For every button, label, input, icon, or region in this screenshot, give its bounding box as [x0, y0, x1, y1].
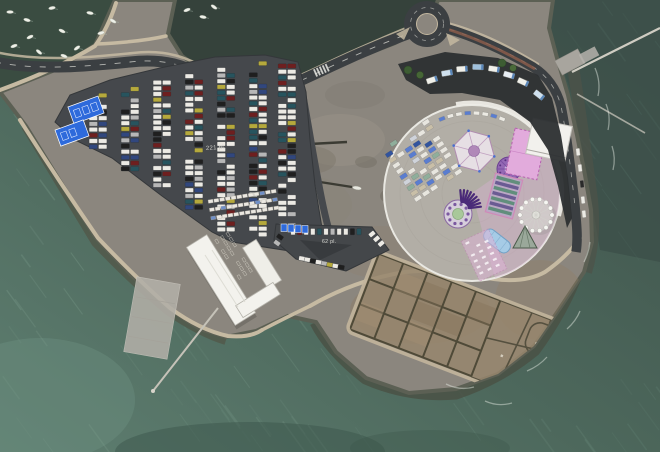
ray	[469, 207, 481, 208]
parked-car	[131, 98, 139, 102]
parked-car	[259, 130, 267, 134]
parked-car	[163, 80, 171, 84]
parked-car	[259, 90, 267, 94]
parked-car	[121, 121, 129, 125]
parked-car	[249, 95, 257, 99]
parked-car	[288, 149, 296, 153]
parked-car	[163, 86, 171, 90]
parked-car	[278, 206, 286, 210]
parked-car	[185, 120, 193, 124]
parked-car	[195, 97, 203, 101]
parked-car	[227, 73, 235, 77]
parked-car	[153, 137, 161, 141]
parked-car	[121, 150, 129, 154]
perimeter-stall	[482, 112, 489, 117]
parked-car	[195, 120, 203, 124]
parked-car	[278, 70, 286, 74]
parked-car	[249, 170, 257, 174]
parked-car	[288, 212, 296, 216]
parked-car	[278, 115, 286, 119]
parked-car	[131, 155, 139, 159]
parked-car	[249, 101, 257, 105]
parked-car	[185, 131, 193, 135]
storage-stall	[208, 199, 213, 203]
parked-car	[217, 153, 225, 157]
storage-stall	[251, 209, 256, 213]
parked-car	[249, 90, 257, 94]
parked-car	[131, 138, 139, 142]
parked-car	[288, 172, 296, 176]
parked-car	[278, 172, 286, 176]
parked-car	[278, 81, 286, 85]
ferris-cabin	[519, 206, 523, 210]
parked-car	[195, 188, 203, 192]
parked-car	[99, 116, 107, 120]
perimeter-stall	[473, 111, 479, 115]
parked-car	[288, 178, 296, 182]
parked-car	[195, 160, 203, 164]
parked-car	[195, 205, 203, 209]
parked-car	[278, 155, 286, 159]
parked-car	[227, 142, 235, 146]
parked-car	[121, 167, 129, 171]
ferris-cabin	[518, 213, 522, 217]
parked-car	[278, 189, 286, 193]
parked-car	[195, 114, 203, 118]
parked-car	[288, 144, 296, 148]
parked-car	[278, 121, 286, 125]
parked-car	[163, 126, 171, 130]
parked-car	[249, 215, 257, 219]
parked-car	[163, 172, 171, 176]
parked-car	[185, 194, 193, 198]
parked-car	[153, 126, 161, 130]
parked-car	[153, 103, 161, 107]
parked-car	[217, 73, 225, 77]
parked-car	[131, 104, 139, 108]
perimeter-stall	[456, 112, 463, 117]
parked-car	[185, 125, 193, 129]
parked-car	[259, 227, 267, 231]
storage-stall	[209, 208, 214, 212]
parked-car	[217, 125, 225, 129]
parked-car	[288, 127, 296, 131]
parked-car	[195, 165, 203, 169]
parked-car	[163, 166, 171, 170]
parked-car	[259, 124, 267, 128]
storage-stall	[261, 199, 266, 203]
ferris-cabin	[544, 200, 548, 204]
site-plan-svg: 221 pl. 62 pl.	[0, 0, 660, 452]
parked-car	[185, 97, 193, 101]
parked-car	[227, 90, 235, 94]
parked-car	[185, 171, 193, 175]
parked-car	[288, 132, 296, 136]
parked-car	[288, 166, 296, 170]
storage-stall	[265, 190, 270, 194]
parked-car	[121, 161, 129, 165]
parked-car	[259, 84, 267, 88]
parked-car	[131, 121, 139, 125]
parked-car	[249, 78, 257, 82]
parked-car	[227, 108, 235, 112]
storage-stall	[244, 202, 249, 206]
parked-car	[278, 104, 286, 108]
ferris-cabin	[544, 225, 548, 229]
storage-stall	[262, 208, 267, 212]
storage-stall	[239, 211, 244, 215]
parked-car	[337, 229, 341, 235]
ray	[460, 190, 461, 202]
storage-stall	[228, 213, 233, 217]
parked-car	[185, 108, 193, 112]
storage-stall	[215, 207, 220, 211]
ferris-cabin	[550, 213, 554, 217]
storage-stall	[248, 193, 253, 197]
parked-car	[576, 148, 581, 156]
parked-car	[227, 85, 235, 89]
parked-car	[227, 170, 235, 174]
parked-car	[121, 138, 129, 142]
parked-car	[249, 130, 257, 134]
parked-car	[350, 229, 354, 235]
ferris-cabin	[548, 206, 552, 210]
ferris-cabin	[530, 228, 534, 232]
parked-car	[163, 115, 171, 119]
parked-car	[578, 164, 583, 172]
perimeter-stall	[465, 111, 471, 115]
storage-stall	[222, 214, 227, 218]
parked-car	[249, 181, 257, 185]
parked-car	[217, 85, 225, 89]
parked-car	[249, 73, 257, 77]
parked-car	[249, 135, 257, 139]
parked-car	[259, 61, 267, 65]
parked-car	[185, 137, 193, 141]
parked-car	[288, 87, 296, 91]
parked-car	[344, 229, 348, 235]
parked-car	[195, 85, 203, 89]
parked-car	[288, 70, 296, 74]
parked-car	[259, 170, 267, 174]
parked-car	[217, 113, 225, 117]
parked-car	[153, 98, 161, 102]
parked-car	[259, 118, 267, 122]
parked-car	[153, 92, 161, 96]
parked-car	[278, 75, 286, 79]
parked-car	[278, 212, 286, 216]
parked-car	[288, 161, 296, 165]
storage-stall	[231, 196, 236, 200]
parked-car	[288, 121, 296, 125]
storage-stall	[214, 198, 219, 202]
parked-car	[338, 265, 345, 270]
parked-car	[288, 92, 296, 96]
parked-car	[227, 227, 235, 231]
parked-car	[121, 155, 129, 159]
parked-car	[288, 155, 296, 159]
storage-stall	[272, 198, 277, 202]
parked-car	[288, 195, 296, 199]
storage-stall	[216, 215, 221, 219]
parked-car	[131, 150, 139, 154]
parked-car	[278, 138, 286, 142]
parked-car	[259, 232, 267, 236]
parked-car	[278, 166, 286, 170]
parked-car	[330, 229, 334, 235]
parked-car	[217, 193, 225, 197]
food-truck	[456, 66, 467, 72]
parked-car	[249, 227, 257, 231]
storage-stall	[268, 207, 273, 211]
boat	[7, 11, 14, 14]
parked-car	[195, 177, 203, 181]
parked-car	[259, 107, 267, 111]
parked-car	[249, 152, 257, 156]
storage-stall	[219, 197, 224, 201]
parked-car	[153, 80, 161, 84]
parked-car	[185, 177, 193, 181]
parked-car	[227, 79, 235, 83]
parked-car	[195, 171, 203, 175]
parked-car	[185, 74, 193, 78]
parked-car	[288, 75, 296, 79]
secondary-parking-capacity-label: 62 pl.	[322, 239, 337, 245]
parked-car	[89, 122, 97, 126]
parked-car	[153, 143, 161, 147]
parked-car	[89, 145, 97, 149]
parked-car	[278, 132, 286, 136]
parked-car	[195, 125, 203, 129]
storage-stall	[226, 205, 231, 209]
parked-car	[217, 96, 225, 100]
food-truck	[472, 64, 483, 70]
parked-car	[249, 113, 257, 117]
parked-car	[227, 187, 235, 191]
parked-car	[153, 109, 161, 113]
parked-car	[249, 141, 257, 145]
parked-car	[278, 201, 286, 205]
parked-car	[99, 122, 107, 126]
parked-car	[259, 95, 267, 99]
parked-car	[153, 149, 161, 153]
parked-car	[217, 182, 225, 186]
storage-stall	[256, 209, 261, 213]
parked-car	[288, 115, 296, 119]
parked-car	[99, 127, 107, 131]
parked-car	[259, 175, 267, 179]
parked-car	[153, 166, 161, 170]
ferris-cabin	[548, 220, 552, 224]
parked-car	[217, 227, 225, 231]
parked-car	[195, 194, 203, 198]
parked-car	[131, 161, 139, 165]
parked-car	[227, 165, 235, 169]
parked-car	[227, 153, 235, 157]
storage-stall	[260, 191, 265, 195]
parked-car	[217, 159, 225, 163]
parked-car	[288, 104, 296, 108]
parked-car	[163, 103, 171, 107]
parked-car	[121, 127, 129, 131]
storage-stall	[255, 200, 260, 204]
ferris-cabin	[537, 197, 541, 201]
parked-car	[121, 110, 129, 114]
storage-stall	[211, 216, 216, 220]
parked-car	[185, 91, 193, 95]
ferris-cabin	[530, 197, 534, 201]
parked-car	[227, 96, 235, 100]
parked-car	[249, 175, 257, 179]
parked-car	[185, 85, 193, 89]
parked-car	[195, 80, 203, 84]
parked-car	[288, 109, 296, 113]
storage-stall	[274, 206, 279, 210]
parked-car	[227, 136, 235, 140]
parked-car	[324, 229, 328, 235]
parked-car	[99, 139, 107, 143]
parked-car	[217, 90, 225, 94]
parked-car	[278, 64, 286, 68]
parked-car	[185, 165, 193, 169]
parked-car	[278, 92, 286, 96]
parked-car	[195, 148, 203, 152]
storage-stall	[245, 210, 250, 214]
parked-car	[185, 188, 193, 192]
ferris-cabin	[519, 220, 523, 224]
parked-car	[249, 84, 257, 88]
parked-car	[288, 98, 296, 102]
parked-car	[185, 182, 193, 186]
parked-car	[185, 80, 193, 84]
parked-car	[153, 172, 161, 176]
parked-car	[217, 187, 225, 191]
parked-car	[580, 180, 585, 188]
parked-car	[259, 221, 267, 225]
parked-car	[259, 204, 267, 208]
parked-car	[163, 149, 171, 153]
parked-car	[357, 229, 361, 235]
storage-stall	[249, 201, 254, 205]
parked-car	[311, 229, 315, 235]
parked-car	[131, 115, 139, 119]
parked-car	[185, 103, 193, 107]
parked-car	[89, 127, 97, 131]
parked-car	[89, 139, 97, 143]
parked-car	[259, 113, 267, 117]
parked-car	[227, 176, 235, 180]
parked-car	[163, 155, 171, 159]
parked-car	[581, 196, 586, 204]
parked-car	[259, 164, 267, 168]
parked-car	[217, 222, 225, 226]
parked-car	[249, 124, 257, 128]
storage-stall	[234, 212, 239, 216]
parked-car	[249, 118, 257, 122]
parked-car	[217, 108, 225, 112]
parked-car	[195, 182, 203, 186]
parked-car	[121, 144, 129, 148]
parked-car	[288, 201, 296, 205]
parked-car	[259, 152, 267, 156]
parked-car	[217, 170, 225, 174]
parked-car	[131, 87, 139, 91]
parked-car	[217, 68, 225, 72]
parked-car	[131, 132, 139, 136]
roundabout-island	[417, 14, 438, 35]
parked-car	[185, 199, 193, 203]
parked-car	[217, 176, 225, 180]
parked-car	[259, 187, 267, 191]
parked-car	[99, 133, 107, 137]
parked-car	[153, 120, 161, 124]
parked-car	[153, 183, 161, 187]
parked-car	[582, 210, 587, 218]
parked-car	[163, 160, 171, 164]
parked-car	[153, 115, 161, 119]
parked-car	[163, 92, 171, 96]
parked-car	[163, 120, 171, 124]
parked-car	[249, 107, 257, 111]
parked-car	[227, 130, 235, 134]
parked-car	[259, 158, 267, 162]
storage-stall	[225, 197, 230, 201]
parked-car	[259, 181, 267, 185]
parked-car	[227, 125, 235, 129]
parked-car	[163, 109, 171, 113]
parked-car	[153, 155, 161, 159]
parked-car	[131, 110, 139, 114]
parked-car	[121, 93, 129, 97]
storage-stall	[254, 192, 259, 196]
parked-car	[195, 108, 203, 112]
parked-car	[153, 177, 161, 181]
parked-car	[227, 182, 235, 186]
parked-car	[195, 199, 203, 203]
storage-stall	[271, 189, 276, 193]
parked-car	[89, 133, 97, 137]
parked-car	[259, 101, 267, 105]
parked-car	[227, 222, 235, 226]
parked-car	[259, 135, 267, 139]
parked-car	[217, 136, 225, 140]
parked-car	[317, 229, 321, 235]
storage-stall	[238, 203, 243, 207]
aerial-site-plan: 221 pl. 62 pl.	[0, 0, 660, 452]
parked-car	[249, 147, 257, 151]
parked-car	[99, 93, 107, 97]
parked-car	[278, 149, 286, 153]
parked-car	[288, 64, 296, 68]
ferris-cabin	[537, 228, 541, 232]
parked-car	[195, 142, 203, 146]
parked-car	[249, 187, 257, 191]
parked-car	[259, 215, 267, 219]
ferris-cabin	[524, 200, 528, 204]
parked-car	[278, 161, 286, 165]
parked-car	[163, 183, 171, 187]
storage-stall	[242, 194, 247, 198]
storage-stall	[237, 195, 242, 199]
parked-car	[227, 113, 235, 117]
storage-stall	[221, 206, 226, 210]
parked-car	[185, 160, 193, 164]
parked-car	[131, 127, 139, 131]
parked-car	[288, 138, 296, 142]
parked-car	[131, 167, 139, 171]
parked-car	[217, 102, 225, 106]
parked-car	[259, 141, 267, 145]
